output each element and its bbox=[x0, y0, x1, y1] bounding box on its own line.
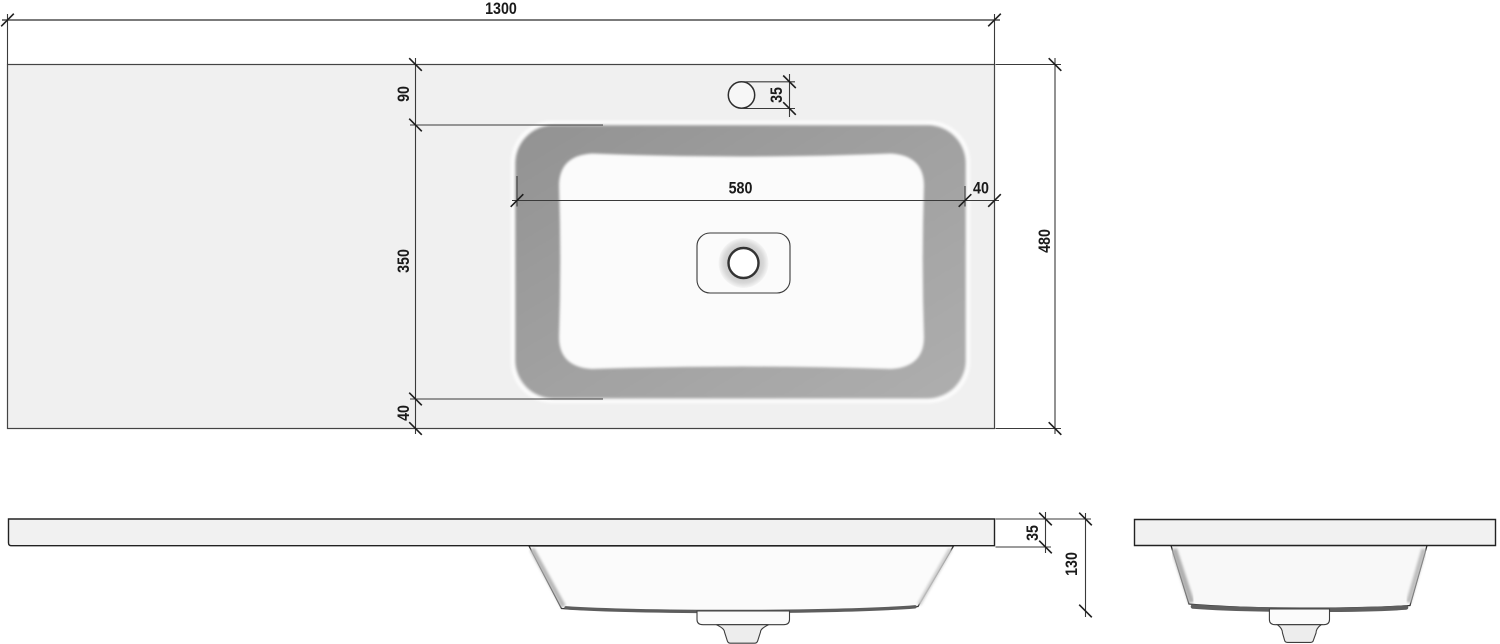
svg-text:40: 40 bbox=[973, 179, 989, 197]
svg-text:130: 130 bbox=[1063, 552, 1081, 576]
svg-text:1300: 1300 bbox=[485, 0, 517, 18]
svg-text:40: 40 bbox=[395, 405, 413, 421]
svg-text:580: 580 bbox=[729, 179, 753, 197]
svg-text:35: 35 bbox=[768, 87, 786, 103]
svg-text:90: 90 bbox=[395, 86, 413, 102]
svg-text:350: 350 bbox=[395, 249, 413, 273]
svg-text:480: 480 bbox=[1036, 229, 1054, 253]
svg-text:35: 35 bbox=[1024, 525, 1042, 541]
